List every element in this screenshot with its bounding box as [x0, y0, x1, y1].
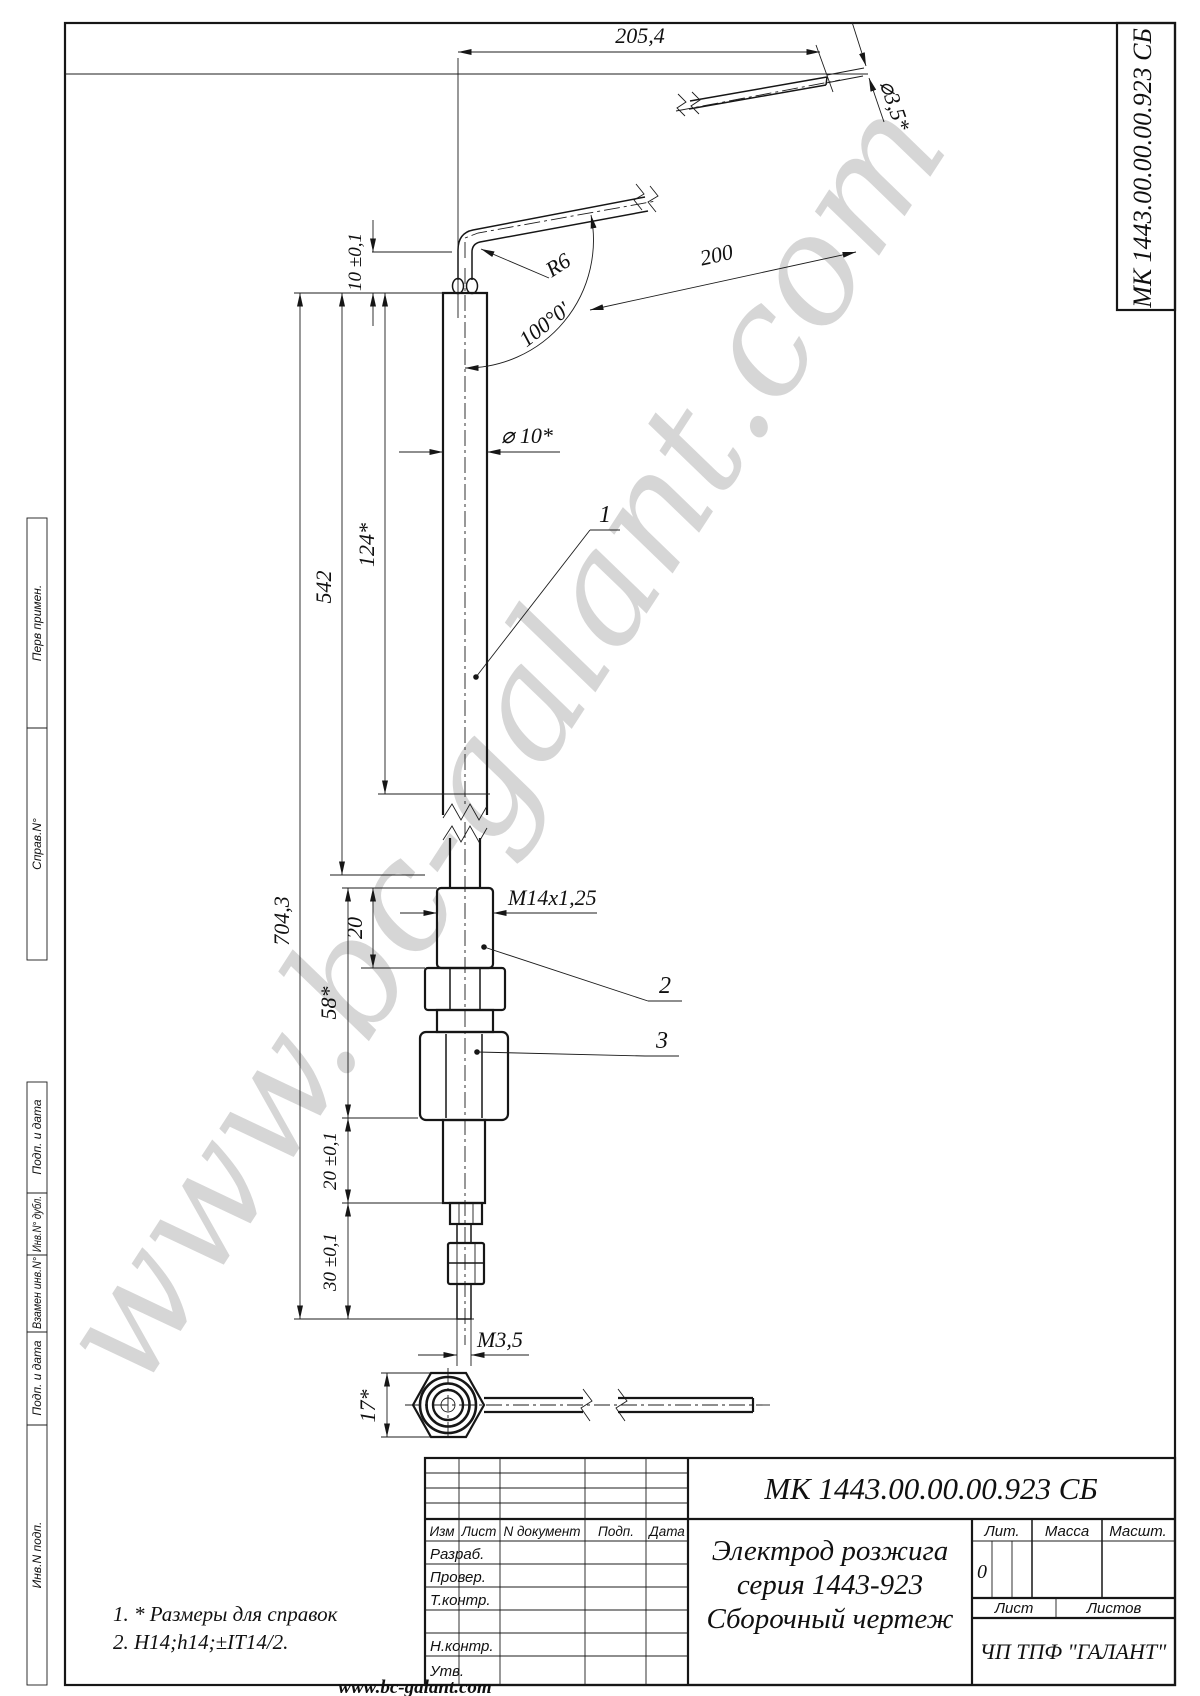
row-razrab: Разраб.: [430, 1546, 484, 1563]
dim-thread-length: 20: [342, 917, 367, 939]
col-data: Дата: [647, 1524, 685, 1539]
dim-exposed-length: 124*: [354, 523, 379, 567]
title-name-line1: Электрод розжига: [712, 1535, 949, 1567]
header-lit: Лит.: [983, 1523, 1019, 1540]
small-hex: [450, 1203, 482, 1224]
dim-top-length: 205,4: [615, 23, 665, 48]
note-line-2: 2. H14;h14;±IT14/2.: [113, 1630, 288, 1654]
title-name-line2: серия 1443-923: [737, 1569, 923, 1601]
wire-section-circle-right: [467, 279, 478, 294]
watermark-text: www.bc-galant.com: [24, 70, 981, 1414]
dim-wire-stickout: 10 ±0,1: [345, 233, 366, 291]
footer-url: www.bc-galant.com: [338, 1677, 491, 1696]
lit-value: 0: [977, 1561, 987, 1583]
corner-doc-number: МК 1443.00.00.00.923 СБ: [1128, 28, 1157, 309]
frame-border: [65, 23, 1175, 1685]
margin-label-podp-data-2: Подп. и дата: [30, 1340, 44, 1415]
dim-bend-angle: 100°0': [514, 296, 575, 351]
margin-label-inv-podp: Инв.N подп.: [30, 1522, 44, 1589]
dim-ceramic-length: 542: [311, 571, 336, 604]
dim-total-length: 704,3: [269, 896, 294, 946]
margin-stamps: Перв примен. Справ.N° Подп. и дата Инв.N…: [27, 518, 47, 1685]
row-prover: Провер.: [430, 1569, 486, 1586]
dim-body-diameter: ⌀ 10*: [501, 423, 553, 448]
title-name-line3: Сборочный чертеж: [707, 1603, 954, 1635]
header-massa: Масса: [1045, 1523, 1089, 1540]
hex-body: [420, 1032, 508, 1120]
header-listov: Листов: [1086, 1600, 1142, 1617]
margin-label-podp-data-1: Подп. и дата: [30, 1099, 44, 1174]
dim-tip-thread: M3,5: [476, 1327, 523, 1352]
margin-label-vzamen-inv: Взамен инв.N°: [30, 1257, 44, 1329]
part-label-1: 1: [599, 502, 611, 528]
margin-label-sprav-n: Справ.N°: [30, 818, 44, 870]
margin-label-inv-dubl: Инв.N° дубл.: [30, 1196, 44, 1252]
title-doc-number: МК 1443.00.00.00.923 СБ: [763, 1471, 1097, 1506]
company-name: ЧП ТПФ "ГАЛАНТ": [980, 1639, 1167, 1664]
dim-stem-length: 20 ±0,1: [320, 1132, 341, 1190]
part-label-2: 2: [659, 973, 671, 999]
margin-label-perv-primen: Перв примен.: [30, 585, 44, 661]
dim-hex-size: 17*: [355, 1390, 380, 1423]
col-podp: Подп.: [598, 1524, 634, 1539]
electrode-end-view: [405, 1368, 770, 1442]
assembly-drawing: www.bc-galant.com МК 1443.00.00.00.923 С…: [0, 0, 1200, 1696]
title-block: Изм Лист N документ Подп. Дата Разраб. П…: [425, 1458, 1175, 1685]
header-list: Лист: [994, 1600, 1034, 1617]
watermark: www.bc-galant.com: [24, 70, 981, 1414]
dim-mount-length: 58*: [316, 987, 341, 1020]
dim-tail-length: 30 ±0,1: [320, 1233, 341, 1292]
dim-thread: M14x1,25: [507, 885, 597, 910]
drawing-frame: МК 1443.00.00.00.923 СБ: [65, 23, 1175, 1685]
dim-bend-radius: R6: [540, 248, 575, 283]
drawing-sheet: www.bc-galant.com МК 1443.00.00.00.923 С…: [0, 0, 1200, 1696]
terminal-rod-upper: [457, 1224, 471, 1243]
col-doc: N документ: [503, 1524, 580, 1539]
footer: www.bc-galant.com: [338, 1677, 491, 1696]
part-label-3: 3: [655, 1028, 668, 1054]
row-nkontr: Н.контр.: [430, 1638, 494, 1655]
col-list: Лист: [461, 1524, 497, 1539]
terminal-thread-m35: [457, 1284, 471, 1319]
stem: [443, 1120, 485, 1203]
note-line-1: 1. * Размеры для справок: [113, 1602, 338, 1626]
notes: 1. * Размеры для справок 2. H14;h14;±IT1…: [113, 1602, 338, 1654]
row-tkontr: Т.контр.: [430, 1592, 491, 1609]
col-izm: Изм: [429, 1524, 454, 1539]
header-masht: Масшт.: [1109, 1523, 1166, 1540]
